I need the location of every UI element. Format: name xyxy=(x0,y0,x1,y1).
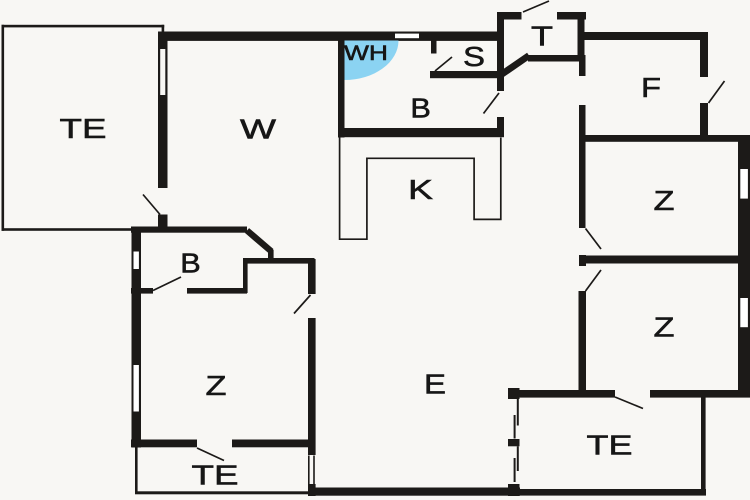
svg-text:S: S xyxy=(463,41,485,72)
svg-text:W: W xyxy=(240,114,277,145)
svg-text:WH: WH xyxy=(344,42,388,65)
svg-text:Z: Z xyxy=(654,185,675,216)
svg-text:TE: TE xyxy=(192,460,239,491)
svg-text:E: E xyxy=(424,369,446,400)
svg-text:T: T xyxy=(531,21,553,52)
svg-text:TE: TE xyxy=(60,113,107,144)
svg-text:Z: Z xyxy=(206,370,227,401)
svg-text:Z: Z xyxy=(654,312,675,343)
svg-text:TE: TE xyxy=(587,430,633,461)
svg-text:B: B xyxy=(180,248,201,279)
svg-text:K: K xyxy=(408,174,433,205)
svg-text:B: B xyxy=(410,92,431,123)
svg-text:F: F xyxy=(641,72,661,103)
